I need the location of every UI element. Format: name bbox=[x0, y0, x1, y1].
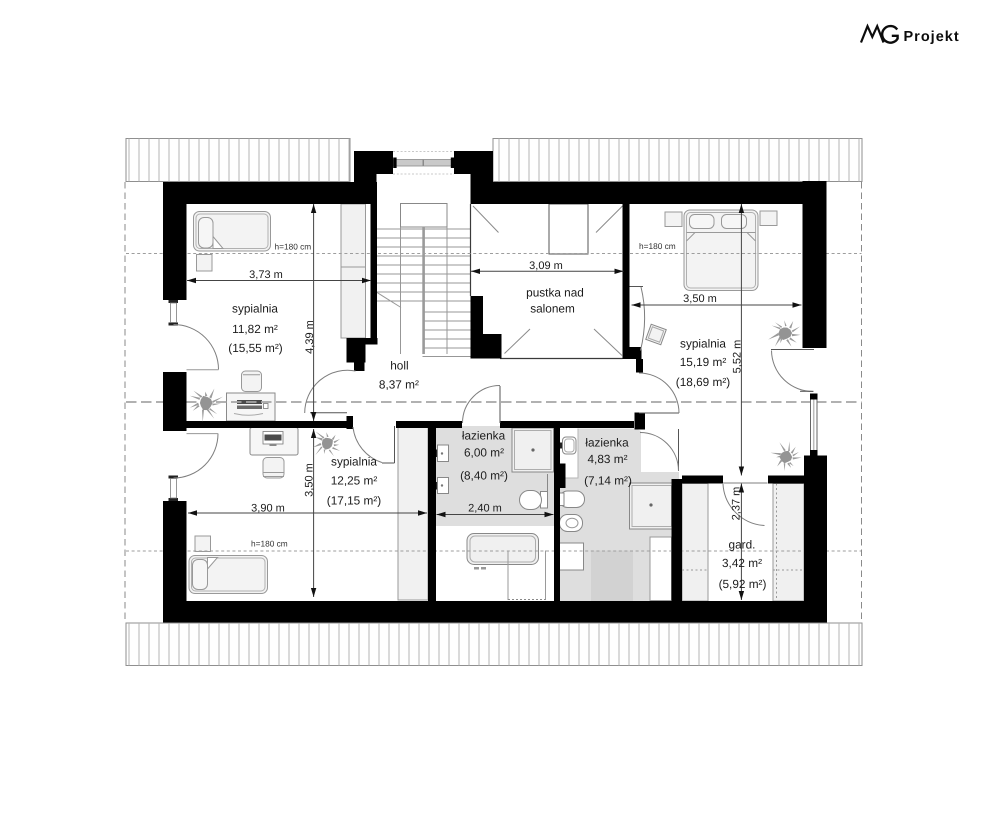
svg-text:3,73 m: 3,73 m bbox=[249, 269, 283, 281]
svg-text:(5,92 m²): (5,92 m²) bbox=[719, 577, 767, 591]
svg-text:12,25 m²: 12,25 m² bbox=[331, 474, 378, 488]
svg-text:h=180 cm: h=180 cm bbox=[639, 241, 676, 251]
svg-text:3,50 m: 3,50 m bbox=[683, 293, 717, 305]
svg-text:sypialnia: sypialnia bbox=[680, 337, 726, 351]
svg-text:h=180 cm: h=180 cm bbox=[251, 539, 288, 549]
svg-text:h=180 cm: h=180 cm bbox=[275, 242, 312, 252]
svg-text:11,82 m²: 11,82 m² bbox=[232, 322, 278, 336]
svg-text:(7,14 m²): (7,14 m²) bbox=[584, 474, 632, 488]
svg-text:6,00 m²: 6,00 m² bbox=[464, 446, 504, 460]
svg-text:pustka nad: pustka nad bbox=[526, 286, 584, 300]
svg-text:Projekt: Projekt bbox=[904, 29, 960, 45]
svg-text:3,42 m²: 3,42 m² bbox=[722, 556, 762, 570]
svg-text:2,37 m: 2,37 m bbox=[731, 487, 743, 521]
svg-text:łazienka: łazienka bbox=[585, 436, 629, 450]
svg-text:4,83 m²: 4,83 m² bbox=[588, 452, 628, 466]
svg-text:4,39 m: 4,39 m bbox=[304, 320, 316, 354]
svg-text:łazienka: łazienka bbox=[462, 429, 506, 443]
svg-text:5,52 m: 5,52 m bbox=[732, 340, 744, 374]
svg-text:salonem: salonem bbox=[530, 302, 575, 316]
svg-text:sypialnia: sypialnia bbox=[232, 302, 278, 316]
svg-text:holl: holl bbox=[390, 359, 408, 373]
svg-text:3,09 m: 3,09 m bbox=[529, 260, 563, 272]
svg-text:3,90 m: 3,90 m bbox=[251, 503, 285, 515]
svg-text:gard.: gard. bbox=[729, 538, 756, 552]
svg-text:3,50 m: 3,50 m bbox=[304, 463, 316, 497]
svg-text:(18,69 m²): (18,69 m²) bbox=[676, 375, 730, 389]
svg-text:2,40 m: 2,40 m bbox=[468, 503, 502, 515]
svg-text:sypialnia: sypialnia bbox=[331, 455, 377, 469]
svg-text:(17,15 m²): (17,15 m²) bbox=[327, 494, 381, 508]
svg-text:15,19 m²: 15,19 m² bbox=[680, 355, 727, 369]
svg-text:(15,55 m²): (15,55 m²) bbox=[228, 341, 282, 355]
svg-text:8,37 m²: 8,37 m² bbox=[379, 377, 419, 391]
svg-text:(8,40 m²): (8,40 m²) bbox=[460, 469, 508, 483]
